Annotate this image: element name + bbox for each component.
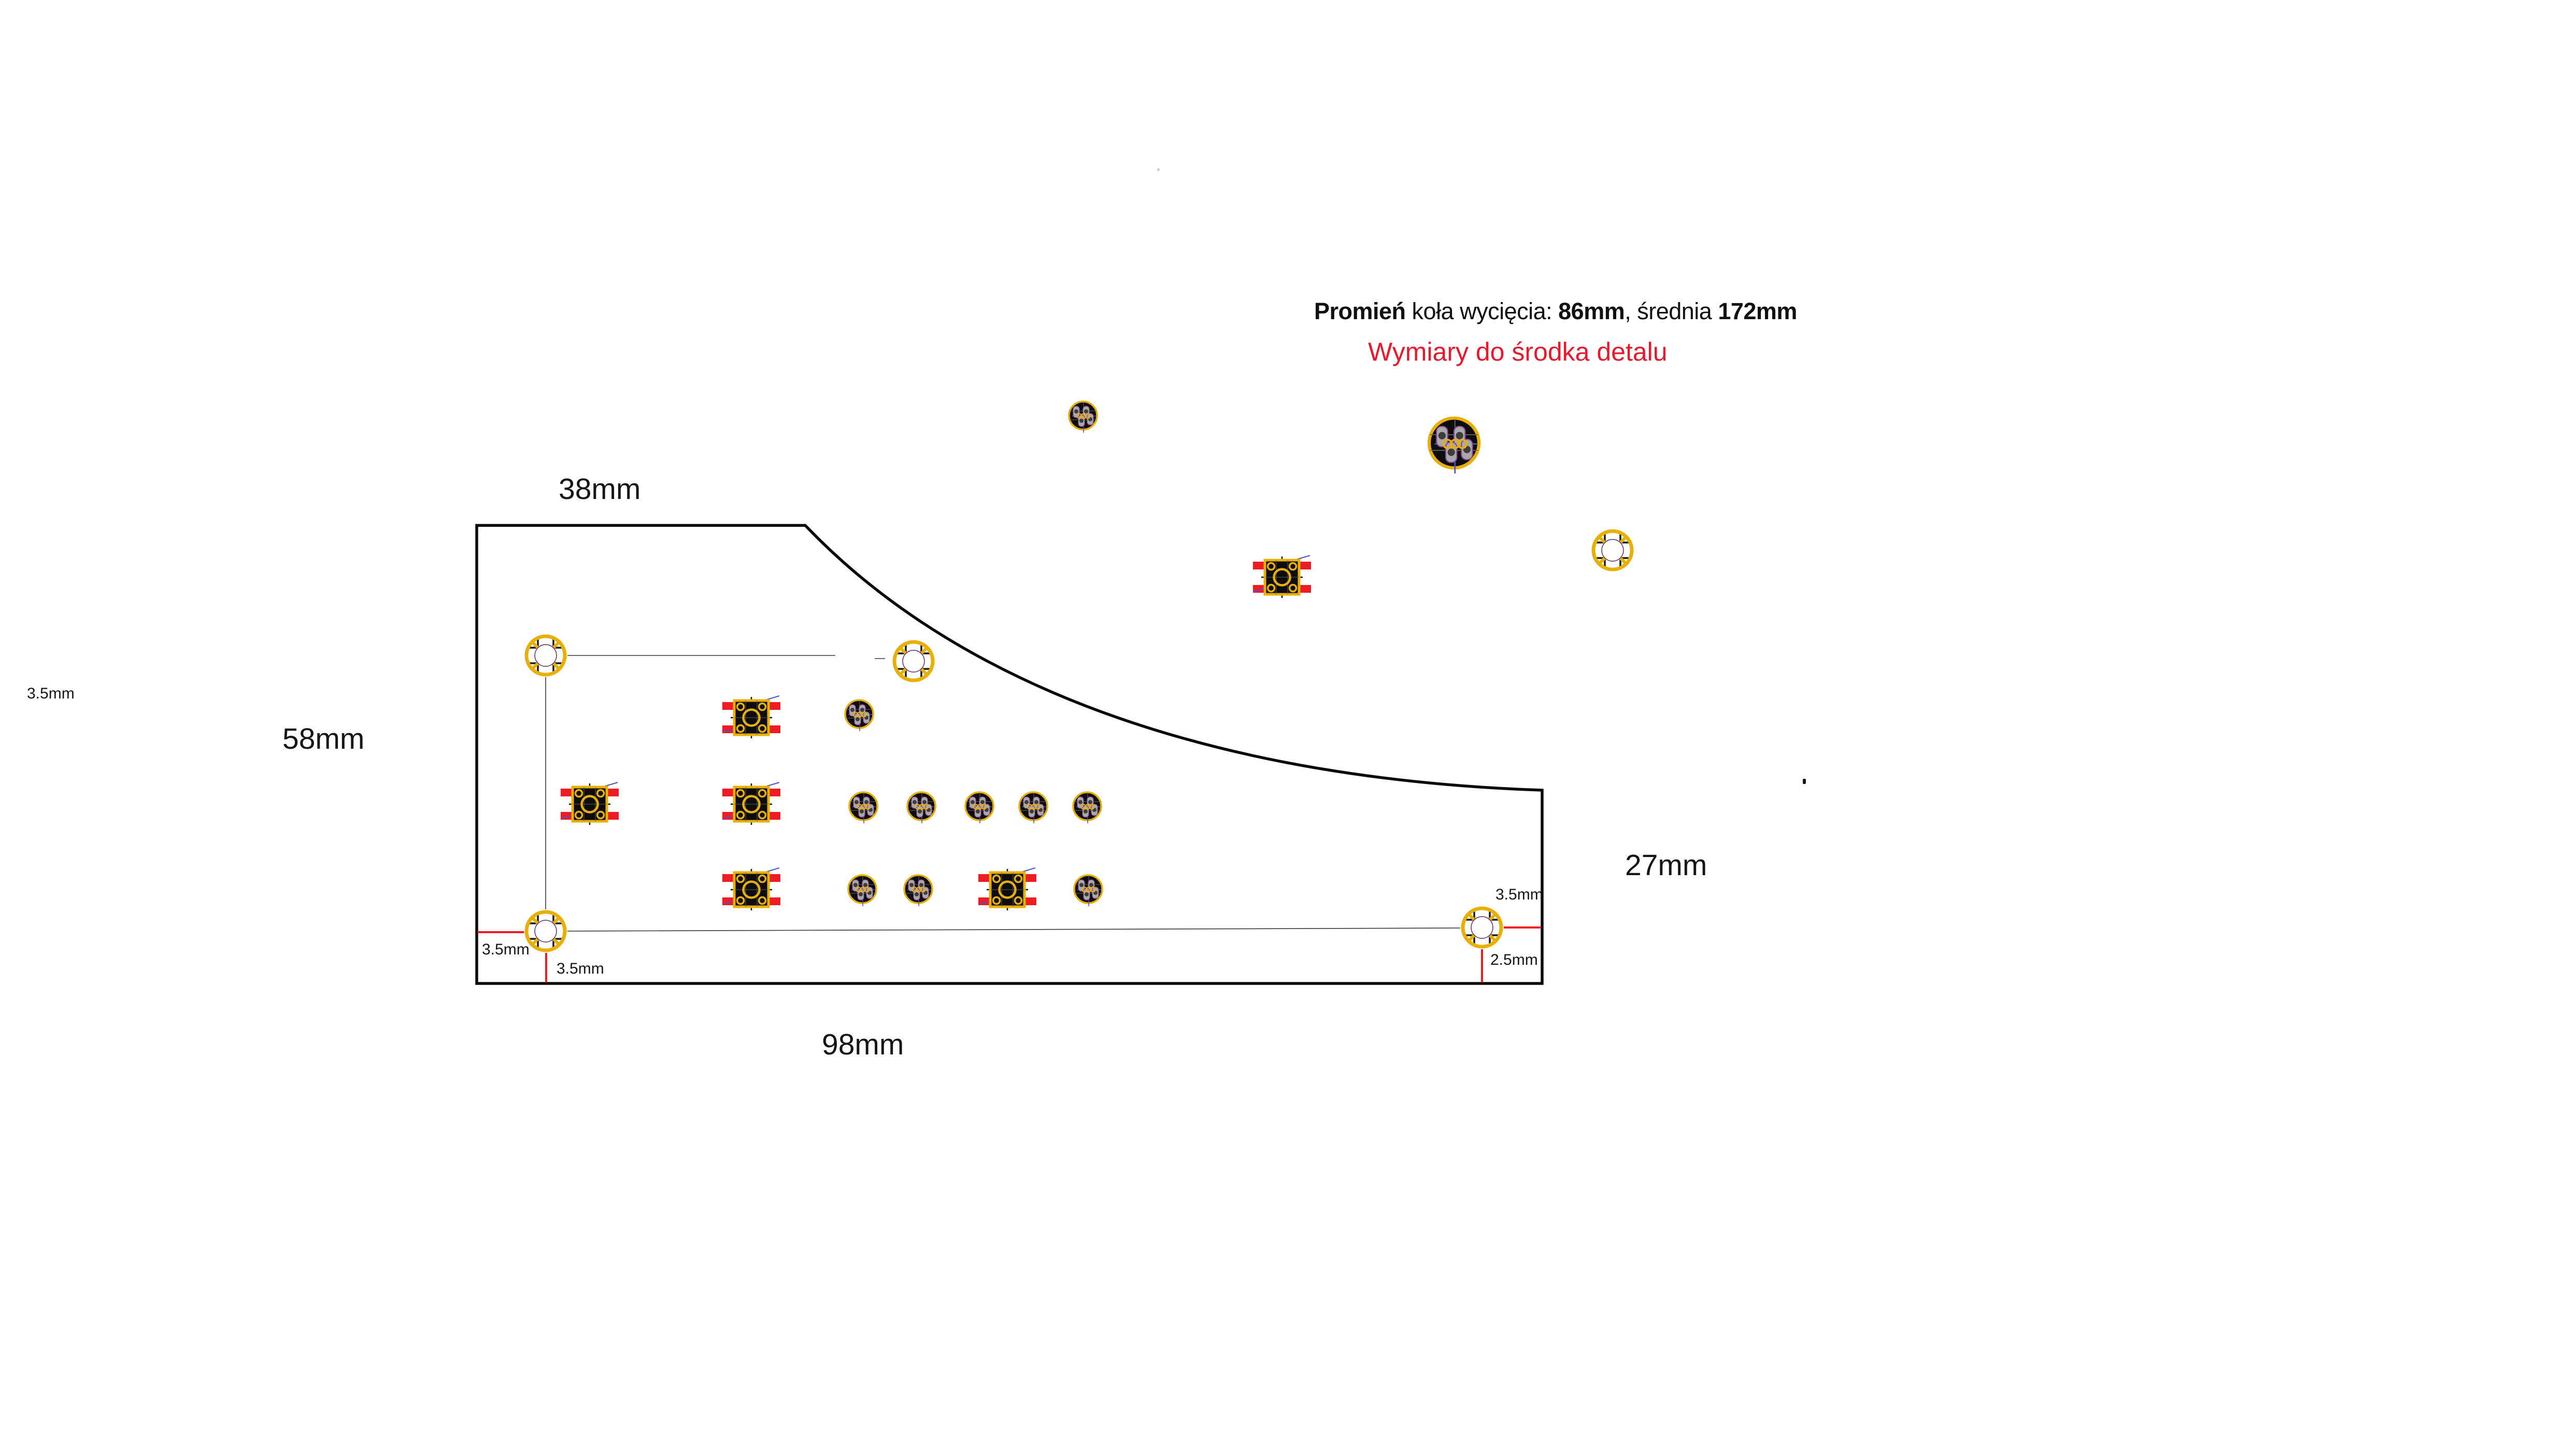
dim-label-stray-left: 3.5mm (27, 686, 75, 702)
dim-label-top-width: 38mm (559, 475, 640, 504)
tact-switch-row3 (722, 868, 780, 910)
note-bold-radius: 86mm (1558, 298, 1625, 324)
note-bold-diameter: 172mm (1718, 298, 1797, 324)
micro-button-row2-2 (907, 792, 935, 823)
dim-label-br-from-bottom: 2.5mm (1490, 952, 1538, 968)
micro-button-row3-3 (1074, 875, 1102, 906)
micro-button-row2-3 (965, 792, 993, 823)
board-outline (477, 525, 1542, 983)
cutout-radius-note: Promień koła wycięcia: 86mm, średnia 172… (1314, 299, 1797, 323)
micro-button-row2-4 (1019, 792, 1047, 823)
dim-label-left-height: 58mm (282, 724, 364, 754)
tact-switch-row2 (722, 782, 780, 825)
pcb-layout-svg (0, 0, 2550, 1456)
tact-switch-row2-left (561, 782, 619, 825)
mounting-hole-top-left (526, 636, 565, 675)
stray-faint-dot (1157, 168, 1160, 171)
micro-button-large-loose (1429, 418, 1479, 474)
micro-button-row2-1 (849, 792, 877, 823)
dim-label-bl-from-left: 3.5mm (482, 942, 530, 958)
note-bold-promien: Promień (1314, 298, 1406, 324)
micro-button-loose-top (1069, 402, 1097, 433)
stray-mark-dot (1803, 779, 1806, 784)
mounting-hole-loose (1593, 531, 1632, 570)
tact-switch-row3-mid (978, 868, 1036, 910)
dim-label-bottom-width: 98mm (822, 1030, 904, 1060)
mounting-hole-bottom-left (526, 911, 565, 951)
micro-button-row1 (845, 700, 873, 731)
note-text-2: , średnia (1625, 298, 1718, 324)
dimensions-to-center-note: Wymiary do środka detalu (1368, 339, 1668, 365)
dim-label-br-from-right: 3.5mm (1495, 887, 1543, 903)
note-text-1: koła wycięcia: (1406, 298, 1559, 324)
micro-button-row3-2 (904, 875, 932, 906)
micro-button-row3-1 (848, 875, 876, 906)
mounting-hole-top-mid (894, 641, 933, 681)
dim-label-bl-from-bottom: 3.5mm (557, 961, 604, 977)
dimension-lines-red (478, 927, 1541, 982)
pcb-dimension-drawing: Promień koła wycięcia: 86mm, średnia 172… (0, 0, 2550, 1456)
tact-switch-loose (1253, 555, 1311, 598)
dim-label-right-height: 27mm (1625, 851, 1707, 880)
mounting-hole-bottom-right (1462, 908, 1502, 947)
tact-switch-row1 (722, 696, 780, 738)
micro-button-row2-5 (1073, 792, 1101, 823)
